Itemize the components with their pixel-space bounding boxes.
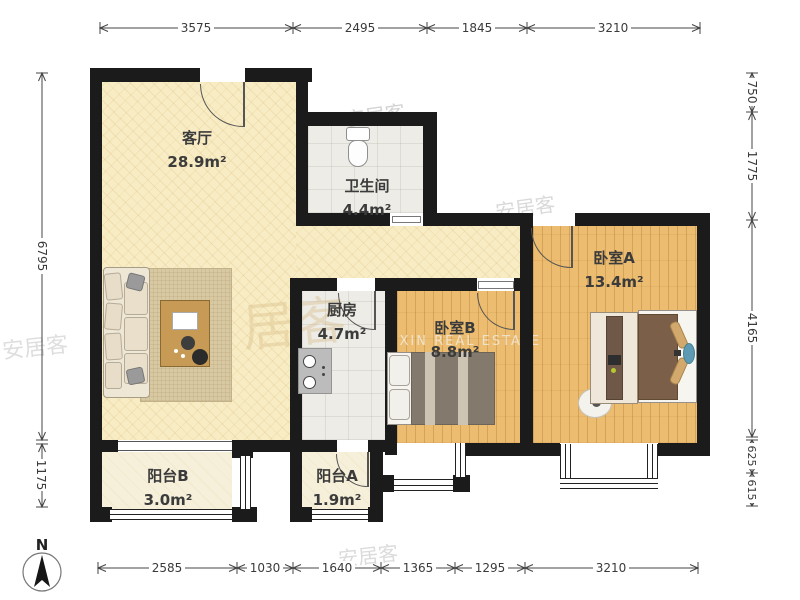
dim-label: 1365 xyxy=(403,561,434,575)
dim-label: 1845 xyxy=(462,21,493,35)
compass-needle xyxy=(34,555,50,587)
dim-label: 2585 xyxy=(152,561,183,575)
dim-label: 6795 xyxy=(35,241,49,272)
dim-label: 1640 xyxy=(322,561,353,575)
compass-north-label: N xyxy=(36,536,49,554)
dim-label: 3575 xyxy=(181,21,212,35)
dimension-overlay: 3575 2495 1845 3210 2585 1030 1640 1365 … xyxy=(0,0,800,600)
compass: N xyxy=(23,536,61,591)
dim-label: 1775 xyxy=(745,151,759,182)
dimension-labels: 3575 2495 1845 3210 2585 1030 1640 1365 … xyxy=(34,21,759,575)
floor-plan: 安居客 安居客 安居客 安居客 安居客 居客 UXIN REAL ESTATE xyxy=(0,0,800,600)
dim-label: 4165 xyxy=(745,313,759,344)
dimension-label-backplates xyxy=(149,21,631,575)
dim-label: 615 xyxy=(745,480,758,501)
dim-label: 3210 xyxy=(596,561,627,575)
dim-label: 2495 xyxy=(345,21,376,35)
dim-label: 750 xyxy=(745,81,759,104)
dim-label: 1295 xyxy=(475,561,506,575)
dim-label: 1175 xyxy=(34,460,48,491)
dimension-lines xyxy=(36,22,758,574)
dim-label: 1030 xyxy=(250,561,281,575)
dim-label: 3210 xyxy=(598,21,629,35)
dim-label: 625 xyxy=(745,446,758,467)
